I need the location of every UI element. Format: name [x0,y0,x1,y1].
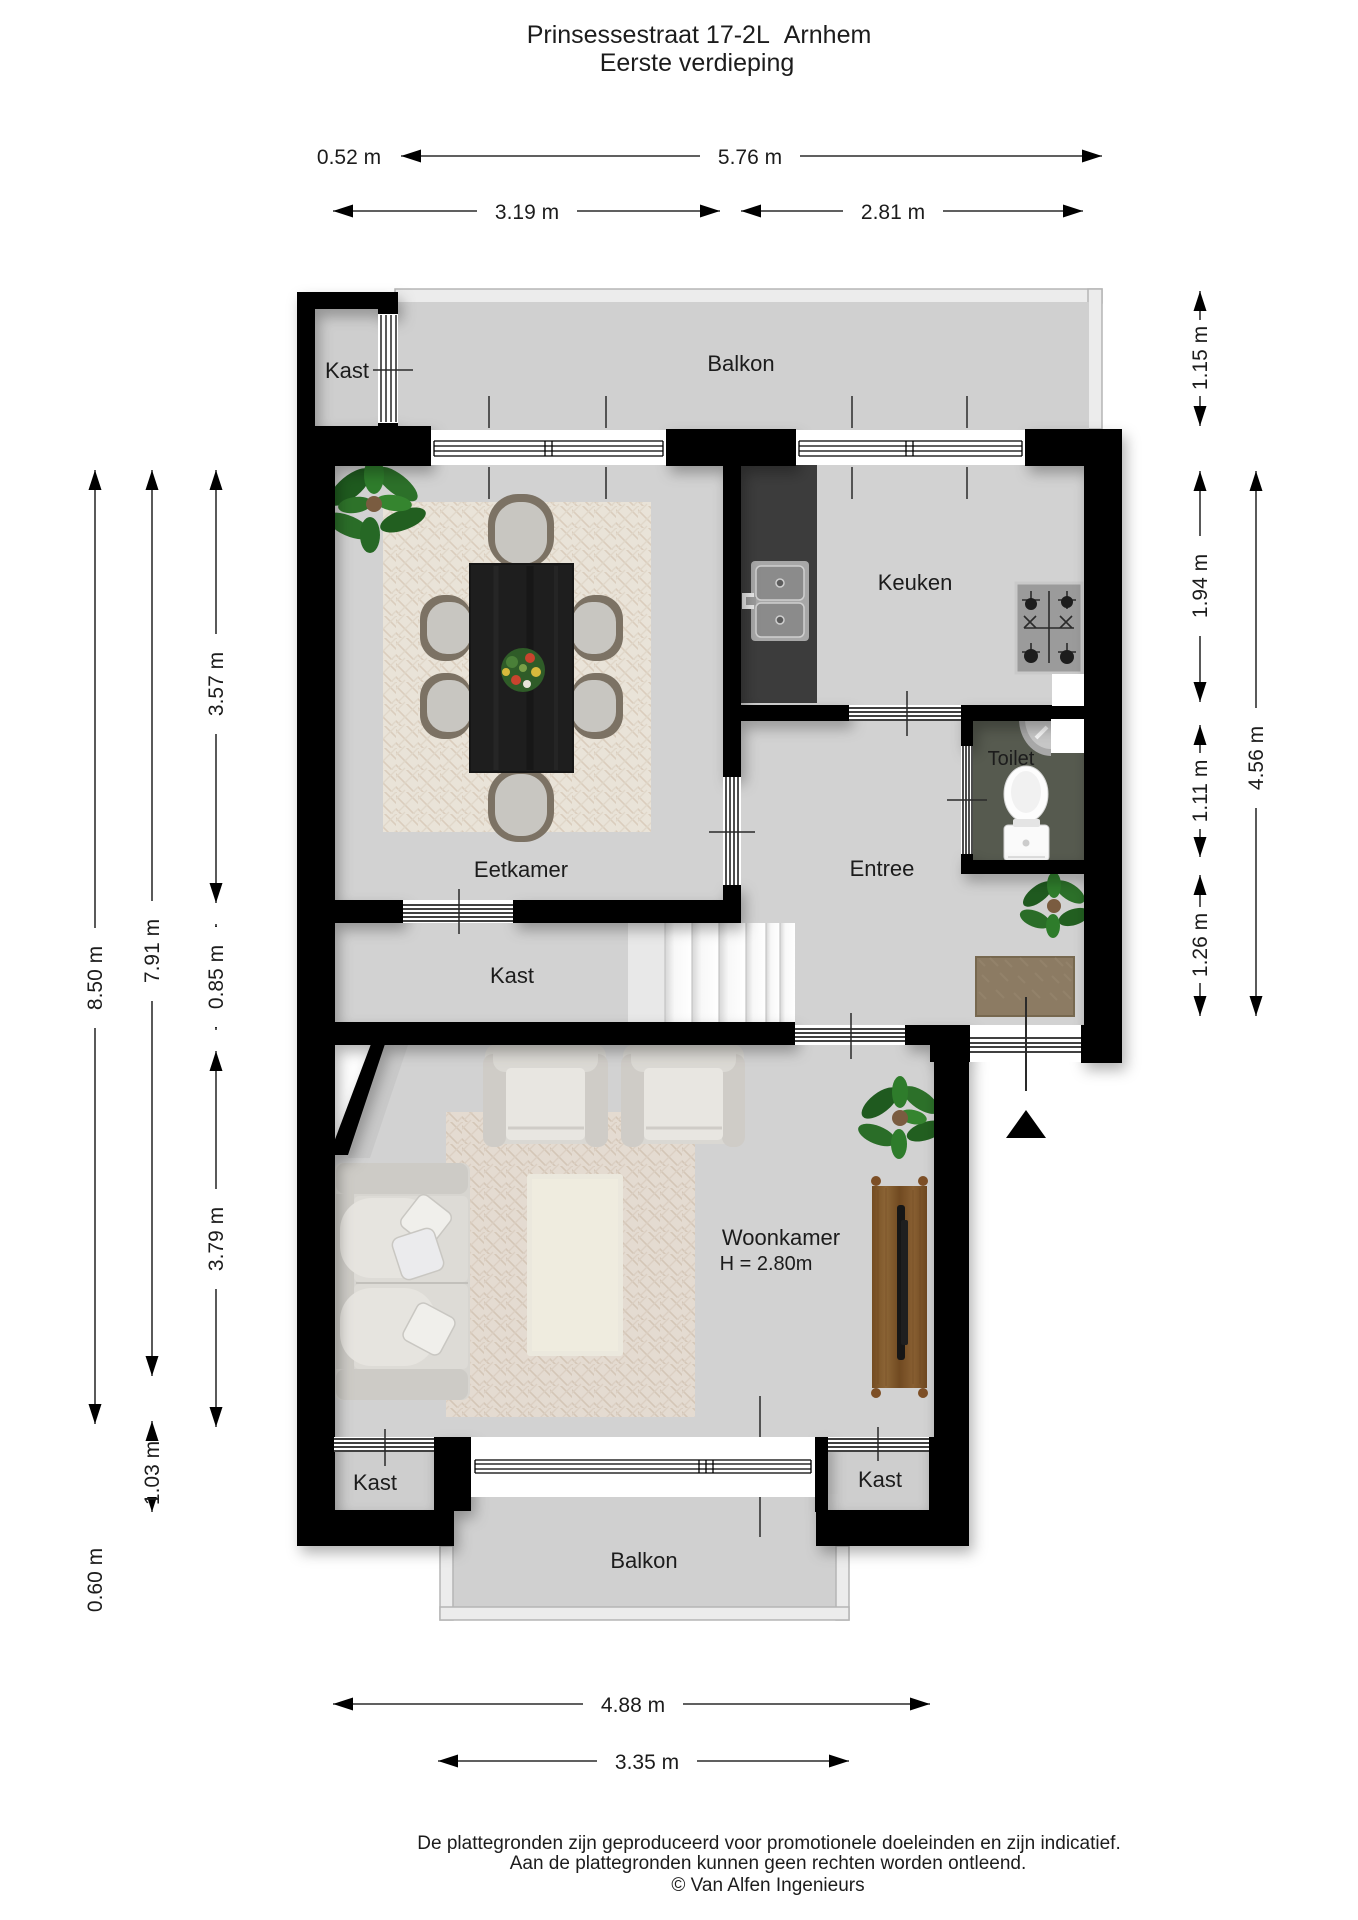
svg-text:0.85 m: 0.85 m [205,945,228,1009]
svg-text:Eetkamer: Eetkamer [474,857,568,882]
svg-text:7.91 m: 7.91 m [141,919,164,983]
svg-text:Balkon: Balkon [707,351,774,376]
svg-text:Kast: Kast [490,963,534,988]
svg-text:1.94 m: 1.94 m [1189,554,1212,618]
svg-text:Kast: Kast [325,358,369,383]
svg-text:3.79 m: 3.79 m [205,1207,228,1271]
svg-text:Toilet: Toilet [988,748,1035,770]
svg-text:Eerste verdieping: Eerste verdieping [600,49,795,77]
svg-text:5.76 m: 5.76 m [718,146,782,169]
svg-text:Kast: Kast [353,1470,397,1495]
svg-text:Kast: Kast [858,1467,902,1492]
svg-text:© Van Alfen Ingenieurs: © Van Alfen Ingenieurs [671,1875,864,1896]
svg-text:Keuken: Keuken [878,570,953,595]
svg-text:3.19 m: 3.19 m [495,201,559,224]
svg-text:3.35 m: 3.35 m [615,1751,679,1774]
svg-text:4.88 m: 4.88 m [601,1694,665,1717]
svg-text:4.56 m: 4.56 m [1245,726,1268,790]
svg-text:Prinsessestraat 17-2L Arnhem: Prinsessestraat 17-2L Arnhem [527,21,872,49]
svg-text:Woonkamer: Woonkamer [722,1225,840,1250]
svg-text:0.52 m: 0.52 m [317,146,381,169]
svg-text:1.26 m: 1.26 m [1189,913,1212,977]
svg-text:Aan de plattegronden kunnen ge: Aan de plattegronden kunnen geen rechten… [510,1853,1027,1874]
svg-text:H = 2.80m: H = 2.80m [720,1253,813,1275]
svg-text:8.50 m: 8.50 m [84,946,107,1010]
svg-text:0.60 m: 0.60 m [84,1548,107,1612]
svg-text:2.81 m: 2.81 m [861,201,925,224]
svg-text:1.11 m: 1.11 m [1189,760,1212,823]
svg-text:Entree: Entree [850,856,915,881]
svg-text:De plattegronden zijn geproduc: De plattegronden zijn geproduceerd voor … [417,1833,1120,1854]
svg-text:Balkon: Balkon [610,1548,677,1573]
svg-text:3.57 m: 3.57 m [205,652,228,716]
svg-text:1.15 m: 1.15 m [1189,326,1212,390]
svg-text:1.03 m: 1.03 m [141,1441,164,1505]
